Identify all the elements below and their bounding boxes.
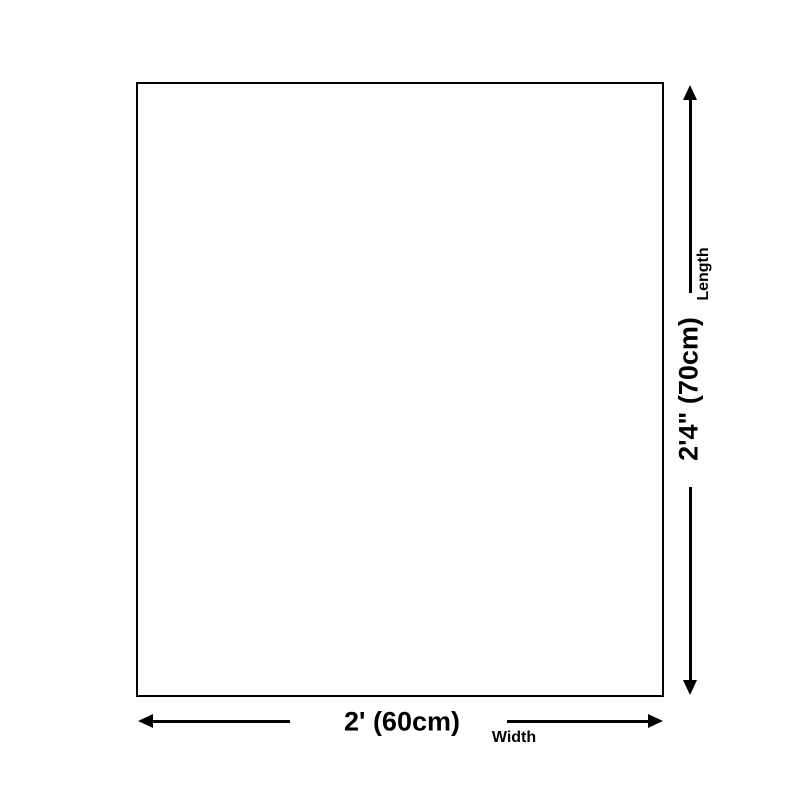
length-label: Length — [695, 247, 713, 300]
length-arrow-top-line — [689, 98, 692, 293]
width-arrow-right-line — [507, 720, 650, 723]
width-arrow-right-icon — [648, 714, 663, 728]
width-label: Width — [492, 729, 536, 747]
length-arrow-down-icon — [683, 680, 697, 695]
width-arrow-left-line — [150, 720, 290, 723]
width-value: 2' (60cm) — [344, 707, 460, 738]
dimension-diagram: 2' (60cm) Width Length 2'4" (70cm) — [0, 0, 800, 800]
product-outline-rect — [136, 82, 664, 697]
length-value: 2'4" (70cm) — [674, 317, 705, 461]
length-arrow-bottom-line — [689, 487, 692, 682]
